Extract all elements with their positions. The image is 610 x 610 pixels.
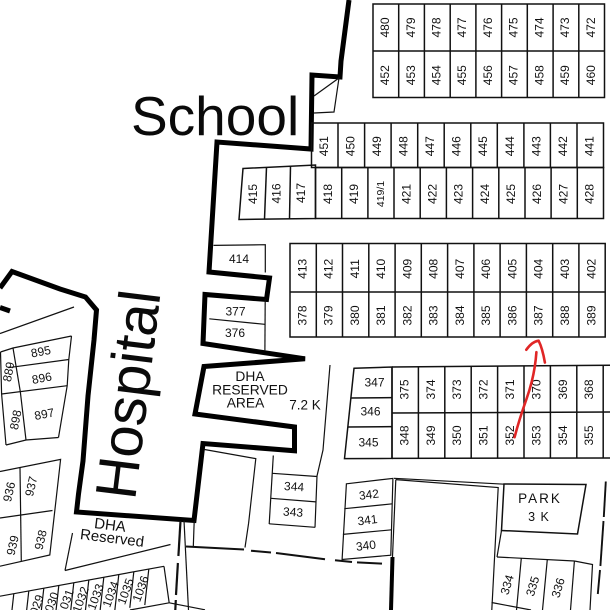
svg-text:349: 349	[424, 425, 438, 445]
svg-text:423: 423	[452, 184, 466, 204]
svg-text:350: 350	[450, 425, 464, 445]
svg-text:375: 375	[397, 379, 411, 399]
svg-text:453: 453	[404, 65, 418, 85]
svg-text:346: 346	[360, 405, 380, 419]
svg-text:355: 355	[582, 425, 596, 445]
svg-text:474: 474	[532, 17, 546, 37]
svg-text:376: 376	[225, 326, 245, 340]
svg-text:449: 449	[370, 136, 384, 156]
svg-text:378: 378	[295, 305, 309, 325]
svg-text:450: 450	[343, 136, 357, 156]
svg-text:480: 480	[378, 17, 392, 37]
svg-text:School: School	[131, 85, 299, 147]
svg-text:456: 456	[481, 65, 495, 85]
svg-text:409: 409	[400, 258, 414, 278]
svg-text:457: 457	[507, 65, 521, 85]
svg-text:415: 415	[246, 184, 260, 204]
svg-text:458: 458	[532, 65, 546, 85]
svg-text:448: 448	[397, 136, 411, 156]
svg-text:442: 442	[556, 136, 570, 156]
svg-text:PARK: PARK	[518, 491, 562, 506]
svg-text:373: 373	[450, 379, 464, 399]
svg-text:454: 454	[429, 65, 443, 85]
svg-text:380: 380	[348, 305, 362, 325]
svg-text:406: 406	[479, 258, 493, 278]
svg-text:340: 340	[355, 537, 377, 553]
svg-text:372: 372	[477, 379, 491, 399]
svg-text:404: 404	[532, 258, 546, 278]
svg-text:455: 455	[455, 65, 469, 85]
svg-text:441: 441	[582, 136, 596, 156]
svg-text:379: 379	[322, 305, 336, 325]
svg-text:446: 446	[450, 136, 464, 156]
svg-text:426: 426	[530, 184, 544, 204]
svg-text:459: 459	[558, 65, 572, 85]
svg-text:384: 384	[453, 305, 467, 325]
svg-text:444: 444	[503, 136, 517, 156]
svg-text:381: 381	[374, 305, 388, 325]
svg-text:347: 347	[364, 376, 384, 390]
svg-text:387: 387	[532, 305, 546, 325]
svg-text:351: 351	[477, 425, 491, 445]
svg-text:411: 411	[348, 259, 362, 278]
svg-text:472: 472	[584, 17, 598, 37]
svg-text:354: 354	[556, 425, 570, 445]
svg-text:419/1: 419/1	[375, 181, 387, 207]
svg-text:476: 476	[481, 17, 495, 37]
svg-text:374: 374	[424, 379, 438, 399]
svg-text:353: 353	[529, 425, 543, 445]
svg-text:410: 410	[374, 258, 388, 278]
svg-text:407: 407	[453, 258, 467, 278]
svg-text:368: 368	[582, 379, 596, 399]
svg-text:451: 451	[317, 136, 331, 156]
svg-text:443: 443	[529, 136, 543, 156]
svg-text:475: 475	[507, 17, 521, 37]
svg-text:425: 425	[504, 184, 518, 204]
svg-text:428: 428	[583, 184, 597, 204]
svg-text:402: 402	[584, 258, 598, 278]
svg-text:417: 417	[294, 183, 308, 203]
svg-text:341: 341	[357, 512, 379, 528]
svg-text:377: 377	[225, 305, 245, 319]
svg-text:386: 386	[505, 305, 519, 325]
svg-text:AREA: AREA	[227, 396, 265, 411]
svg-text:388: 388	[558, 305, 572, 325]
svg-text:403: 403	[558, 258, 572, 278]
svg-text:383: 383	[427, 305, 441, 325]
svg-text:452: 452	[378, 65, 392, 85]
svg-text:345: 345	[358, 436, 378, 450]
svg-text:416: 416	[270, 183, 284, 203]
svg-text:473: 473	[558, 17, 572, 37]
svg-text:371: 371	[503, 379, 517, 399]
svg-text:419: 419	[347, 184, 361, 204]
svg-text:3 K: 3 K	[528, 510, 550, 524]
svg-text:414: 414	[229, 252, 249, 266]
svg-text:7.2 K: 7.2 K	[289, 398, 321, 413]
svg-text:413: 413	[295, 258, 309, 278]
svg-text:479: 479	[404, 17, 418, 37]
svg-text:447: 447	[423, 136, 437, 156]
svg-text:418: 418	[321, 184, 335, 204]
svg-text:408: 408	[427, 258, 441, 278]
svg-text:343: 343	[283, 504, 304, 519]
svg-text:478: 478	[429, 17, 443, 37]
svg-text:427: 427	[556, 184, 570, 204]
svg-text:405: 405	[505, 258, 519, 278]
svg-text:412: 412	[322, 258, 336, 278]
svg-text:421: 421	[399, 184, 413, 204]
svg-text:424: 424	[478, 184, 492, 204]
svg-text:369: 369	[556, 379, 570, 399]
svg-text:460: 460	[584, 65, 598, 85]
svg-text:477: 477	[455, 17, 469, 37]
svg-text:382: 382	[400, 305, 414, 325]
svg-text:342: 342	[358, 486, 380, 502]
svg-text:422: 422	[425, 184, 439, 204]
svg-text:348: 348	[397, 425, 411, 445]
svg-text:445: 445	[476, 136, 490, 156]
svg-text:344: 344	[284, 479, 305, 494]
svg-text:389: 389	[584, 305, 598, 325]
svg-text:385: 385	[479, 305, 493, 325]
